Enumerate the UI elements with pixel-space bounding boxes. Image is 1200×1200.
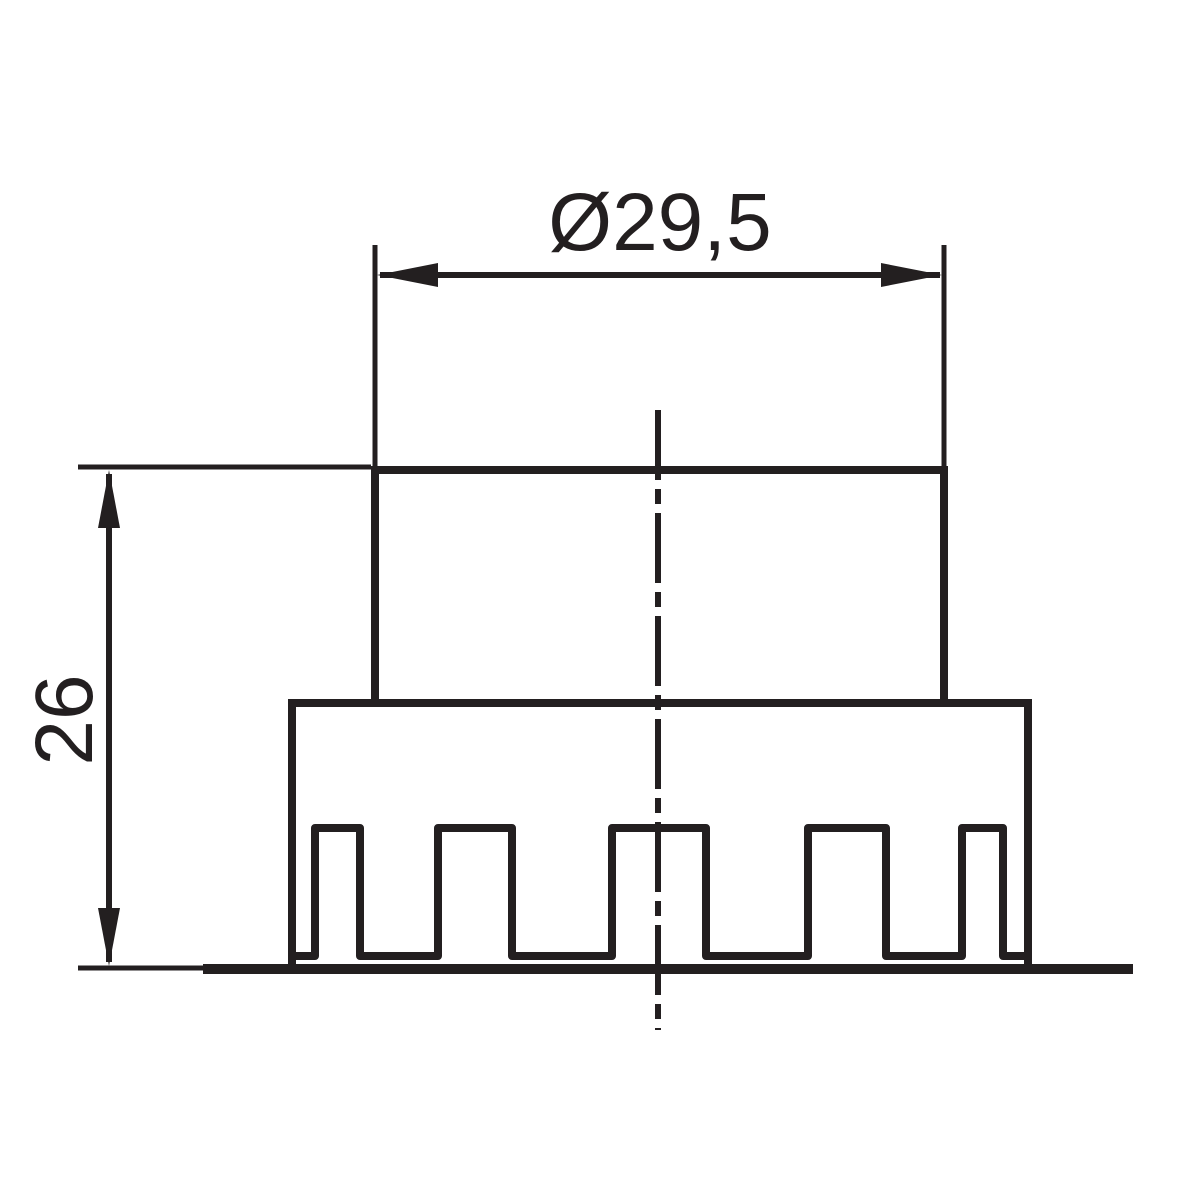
diameter-arrowhead-left	[377, 263, 438, 287]
diameter-arrowhead-right	[881, 263, 942, 287]
stroke-group	[78, 245, 1133, 1030]
diameter-dimension-label: Ø29,5	[548, 177, 771, 268]
height-dimension-label: 26	[19, 674, 110, 765]
technical-drawing: Ø29,5 26	[0, 0, 1200, 1200]
height-arrowhead-bottom	[98, 908, 120, 966]
fill-group: Ø29,5 26	[19, 177, 942, 966]
drawing-svg: Ø29,5 26	[0, 0, 1200, 1200]
height-arrowhead-top	[98, 470, 120, 528]
